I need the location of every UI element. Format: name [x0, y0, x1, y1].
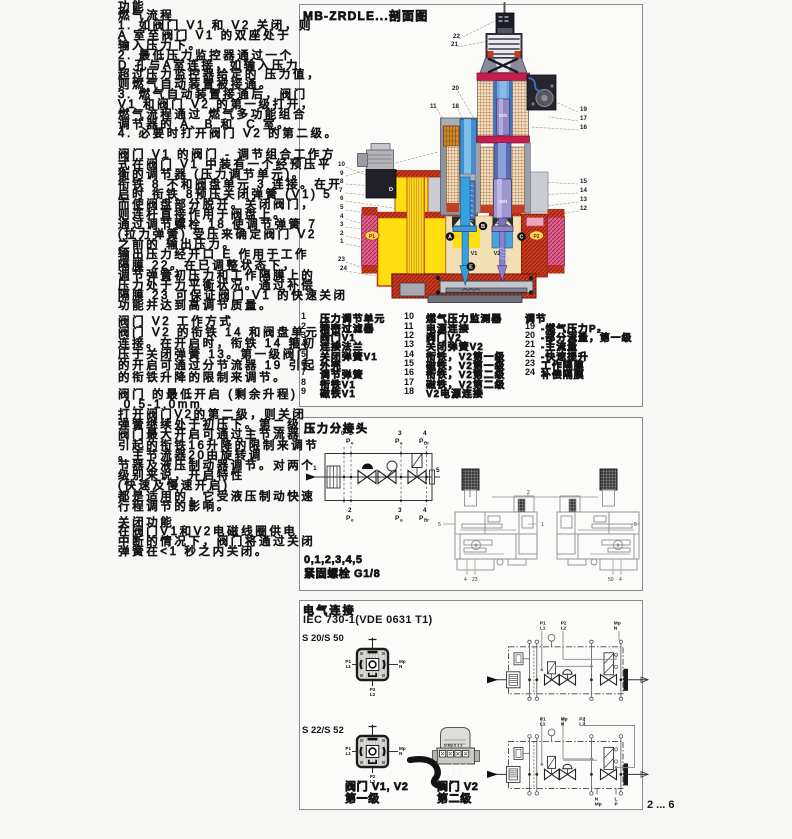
svg-text:L1: L1 [346, 664, 352, 669]
svg-text:2: 2 [527, 490, 530, 496]
svg-text:5: 5 [340, 204, 344, 211]
svg-text:L2: L2 [370, 692, 376, 697]
svg-text:Br: Br [424, 441, 429, 446]
svg-text:16: 16 [580, 124, 587, 131]
svg-text:L2: L2 [370, 779, 376, 784]
svg-text:C: C [519, 235, 523, 241]
svg-text:a: a [400, 518, 403, 523]
svg-text:L2: L2 [561, 626, 567, 632]
svg-text:4: 4 [423, 430, 427, 437]
svg-text:8: 8 [340, 178, 344, 185]
svg-text:7: 7 [339, 187, 343, 194]
svg-text:2: 2 [348, 507, 352, 514]
svg-text:e: e [351, 518, 354, 523]
svg-text:5: 5 [438, 522, 441, 528]
svg-text:3: 3 [340, 221, 344, 228]
svg-text:2: 2 [340, 230, 344, 237]
svg-text:V2/1: V2/1 [499, 199, 508, 204]
svg-text:0: 0 [341, 430, 345, 437]
svg-text:4: 4 [464, 577, 467, 583]
svg-text:P1: P1 [369, 234, 375, 240]
svg-text:50: 50 [608, 577, 614, 583]
svg-text:18: 18 [452, 103, 459, 110]
svg-text:1: 1 [340, 238, 344, 245]
svg-text:6: 6 [340, 195, 344, 202]
svg-text:1: 1 [313, 465, 317, 472]
svg-text:14: 14 [580, 187, 587, 194]
svg-text:P2: P2 [533, 234, 539, 240]
svg-text:5: 5 [634, 522, 637, 528]
svg-text:22: 22 [453, 33, 460, 40]
svg-text:12: 12 [580, 205, 587, 212]
svg-text:D: D [389, 187, 393, 193]
svg-text:N: N [614, 626, 618, 632]
svg-text:9: 9 [340, 170, 344, 177]
svg-text:e: e [351, 441, 354, 446]
svg-text:Mp: Mp [595, 802, 602, 808]
svg-text:L1: L1 [346, 751, 352, 756]
svg-text:L1: L1 [540, 722, 546, 728]
svg-text:V1: V1 [471, 251, 478, 257]
svg-text:15: 15 [580, 178, 587, 185]
svg-text:21: 21 [451, 41, 458, 48]
svg-text:24: 24 [340, 265, 347, 272]
svg-text:Br: Br [424, 518, 429, 523]
svg-text:13: 13 [580, 196, 587, 203]
svg-text:E: E [469, 265, 473, 271]
svg-text:17: 17 [580, 115, 587, 122]
svg-text:V2: V2 [494, 251, 501, 257]
svg-text:4: 4 [423, 507, 427, 514]
svg-text:V2/2: V2/2 [499, 113, 508, 118]
svg-text:4: 4 [619, 577, 622, 583]
svg-text:5: 5 [436, 467, 440, 474]
svg-text:19: 19 [580, 106, 587, 113]
svg-text:23: 23 [472, 577, 478, 583]
svg-text:23: 23 [338, 256, 345, 263]
svg-text:4: 4 [340, 213, 344, 220]
svg-text:N: N [399, 751, 403, 756]
svg-text:N: N [561, 722, 565, 728]
svg-text:1: 1 [541, 522, 544, 528]
svg-text:N Mp ⚲ 1 2: N Mp ⚲ 1 2 [444, 744, 462, 748]
svg-text:L1: L1 [540, 626, 546, 632]
svg-text:10: 10 [338, 161, 345, 168]
svg-text:20: 20 [452, 85, 459, 92]
svg-text:11: 11 [430, 103, 437, 110]
svg-text:3: 3 [398, 430, 402, 437]
svg-text:N: N [399, 664, 403, 669]
svg-text:3: 3 [398, 507, 402, 514]
svg-text:B: B [481, 224, 485, 230]
svg-text:2: 2 [349, 430, 353, 437]
svg-text:a: a [400, 441, 403, 446]
svg-text:A: A [448, 235, 452, 241]
svg-text:L2: L2 [579, 722, 585, 728]
svg-text:P: P [615, 802, 619, 808]
